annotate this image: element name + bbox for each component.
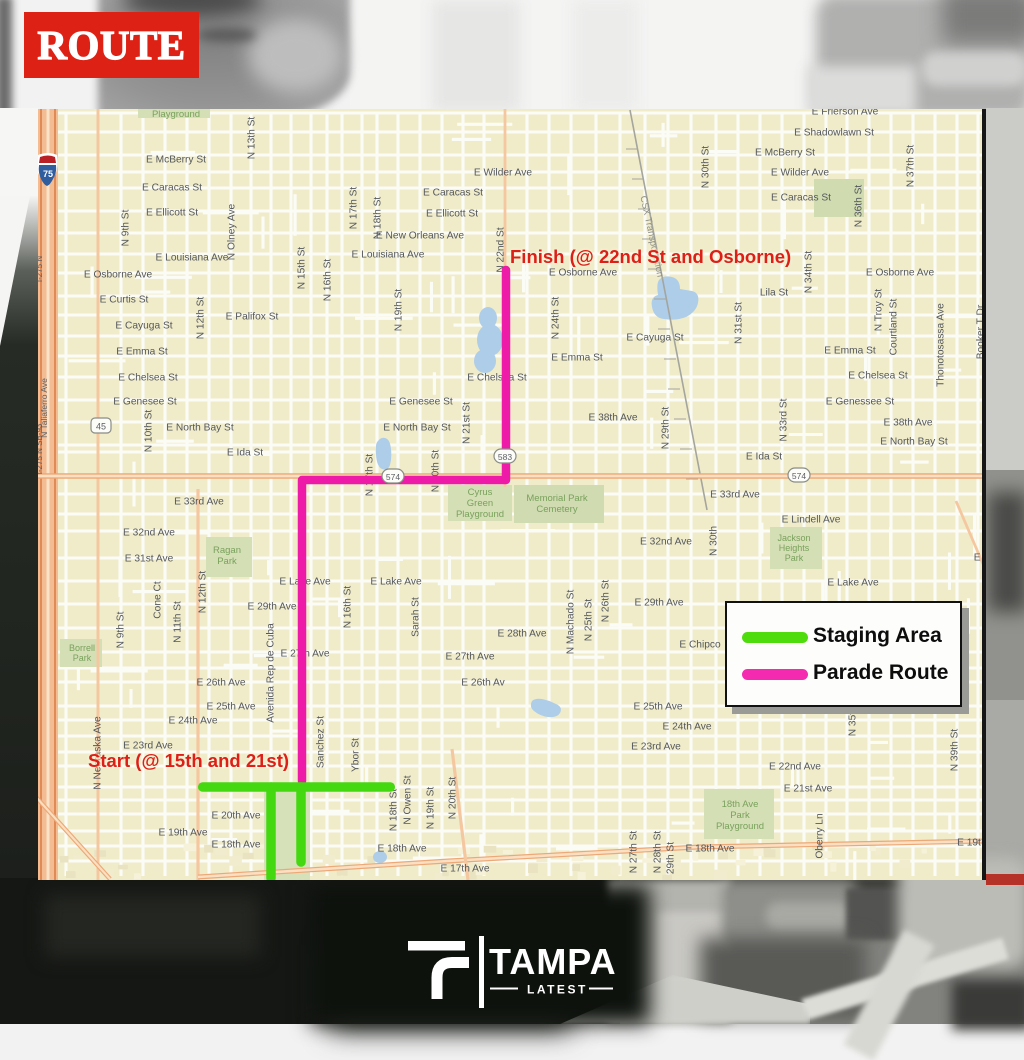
svg-text:E 26th Av: E 26th Av xyxy=(461,678,505,689)
svg-text:N 20th St: N 20th St xyxy=(448,777,459,820)
svg-text:Cone Ct: Cone Ct xyxy=(153,581,164,619)
svg-text:I-275 N: I-275 N xyxy=(38,256,44,282)
svg-text:Cyrus: Cyrus xyxy=(468,487,493,498)
svg-text:Park: Park xyxy=(785,553,804,563)
svg-text:E New Orleans Ave: E New Orleans Ave xyxy=(376,231,464,242)
svg-text:N 27th St: N 27th St xyxy=(629,831,640,874)
svg-text:E 33rd Ave: E 33rd Ave xyxy=(710,490,760,501)
svg-text:E Emma St: E Emma St xyxy=(116,347,168,358)
svg-text:E North Bay St: E North Bay St xyxy=(383,423,451,434)
svg-text:N 36th St: N 36th St xyxy=(854,185,865,228)
svg-text:E 25th Ave: E 25th Ave xyxy=(206,702,255,713)
svg-text:N 31st St: N 31st St xyxy=(734,302,745,344)
svg-text:45: 45 xyxy=(96,422,106,432)
svg-text:E Emma St: E Emma St xyxy=(551,353,603,364)
svg-text:E 29th Ave: E 29th Ave xyxy=(634,598,683,609)
svg-text:N 21st St: N 21st St xyxy=(462,402,473,444)
svg-text:E 38th Ave: E 38th Ave xyxy=(588,413,637,424)
svg-text:N 10th St: N 10th St xyxy=(144,410,155,453)
svg-text:E 24th Ave: E 24th Ave xyxy=(168,716,217,727)
svg-text:E 31st Ave: E 31st Ave xyxy=(125,554,174,565)
svg-text:Courtland St: Courtland St xyxy=(889,299,900,356)
svg-text:574: 574 xyxy=(386,472,400,482)
svg-text:E Genesee St: E Genesee St xyxy=(389,397,453,408)
svg-text:N 17th St: N 17th St xyxy=(365,454,376,497)
svg-text:Playground: Playground xyxy=(456,509,504,520)
svg-text:E Louisiana Ave: E Louisiana Ave xyxy=(352,250,425,261)
svg-text:Avenida Rep de Cuba: Avenida Rep de Cuba xyxy=(266,623,277,723)
svg-text:E Chelsea St: E Chelsea St xyxy=(467,373,527,384)
svg-text:E Lake Ave: E Lake Ave xyxy=(827,578,879,589)
svg-text:E Curtis St: E Curtis St xyxy=(100,295,149,306)
svg-text:N 26th St: N 26th St xyxy=(601,580,612,623)
svg-text:E Ida St: E Ida St xyxy=(746,452,782,463)
svg-text:E Ellicott St: E Ellicott St xyxy=(426,209,478,220)
svg-text:LATEST: LATEST xyxy=(527,983,588,997)
svg-text:E Osborne Ave: E Osborne Ave xyxy=(84,270,153,281)
svg-text:E Genesee St: E Genesee St xyxy=(113,397,177,408)
svg-text:E 18th Ave: E 18th Ave xyxy=(685,844,734,855)
svg-text:E 32nd Ave: E 32nd Ave xyxy=(640,537,692,548)
svg-text:E 23rd Ave: E 23rd Ave xyxy=(631,742,681,753)
svg-text:N 12th St: N 12th St xyxy=(198,571,209,614)
svg-text:18th Ave: 18th Ave xyxy=(722,799,759,810)
svg-text:Heights: Heights xyxy=(779,543,810,553)
svg-text:E Caracas St: E Caracas St xyxy=(142,183,202,194)
svg-text:E Palifox St: E Palifox St xyxy=(226,312,279,323)
svg-text:E Emma St: E Emma St xyxy=(824,346,876,357)
svg-text:N 33rd St: N 33rd St xyxy=(779,398,790,441)
svg-text:E 28th Ave: E 28th Ave xyxy=(497,629,546,640)
svg-text:E 18th Ave: E 18th Ave xyxy=(377,844,426,855)
svg-text:E 33rd Ave: E 33rd Ave xyxy=(174,497,224,508)
svg-text:E 24th Ave: E 24th Ave xyxy=(662,722,711,733)
svg-text:E Wilder Ave: E Wilder Ave xyxy=(771,168,829,179)
svg-text:Park: Park xyxy=(73,653,92,663)
svg-text:E 21st Ave: E 21st Ave xyxy=(784,784,833,795)
svg-text:N Owen St: N Owen St xyxy=(403,775,414,824)
svg-text:Jackson: Jackson xyxy=(777,533,810,543)
svg-text:E 18th Ave: E 18th Ave xyxy=(211,840,260,851)
svg-text:N 11th St: N 11th St xyxy=(173,601,184,643)
svg-text:N 16th St: N 16th St xyxy=(323,259,334,302)
svg-text:N 16th St: N 16th St xyxy=(343,586,354,629)
svg-text:Lila St: Lila St xyxy=(760,288,788,299)
svg-text:Thonotosassa Ave: Thonotosassa Ave xyxy=(936,303,947,387)
svg-text:Memorial Park: Memorial Park xyxy=(526,493,587,504)
svg-text:E 29th Ave: E 29th Ave xyxy=(247,602,296,613)
svg-text:N 25th St: N 25th St xyxy=(584,599,595,642)
svg-text:N 18th St: N 18th St xyxy=(373,197,384,240)
svg-text:29th St: 29th St xyxy=(666,842,677,874)
svg-text:N 19th St: N 19th St xyxy=(394,289,405,332)
svg-text:Ybor St: Ybor St xyxy=(351,738,362,772)
svg-text:N 18th St: N 18th St xyxy=(389,789,400,832)
svg-text:E 25th Ave: E 25th Ave xyxy=(633,702,682,713)
svg-text:N Olney Ave: N Olney Ave xyxy=(227,203,238,260)
svg-text:N 37th St: N 37th St xyxy=(906,145,917,188)
svg-text:E 19t: E 19t xyxy=(957,838,981,849)
svg-text:N 9th St: N 9th St xyxy=(121,209,132,246)
svg-text:N 15th St: N 15th St xyxy=(297,247,308,290)
svg-text:E Caracas St: E Caracas St xyxy=(771,193,831,204)
svg-text:Park: Park xyxy=(730,810,750,821)
svg-text:Playground: Playground xyxy=(716,821,764,832)
svg-text:E 32nd Ave: E 32nd Ave xyxy=(123,528,175,539)
svg-text:N 39th St: N 39th St xyxy=(950,729,961,772)
svg-text:E Chelsea St: E Chelsea St xyxy=(848,371,908,382)
svg-text:N 24th St: N 24th St xyxy=(551,297,562,340)
svg-text:N 22nd St: N 22nd St xyxy=(496,227,507,272)
svg-text:E Lindell Ave: E Lindell Ave xyxy=(782,515,841,526)
svg-text:E McBerry St: E McBerry St xyxy=(755,148,815,159)
svg-text:E Chelsea St: E Chelsea St xyxy=(118,373,178,384)
svg-text:Playground: Playground xyxy=(152,109,200,120)
svg-text:N 13th St: N 13th St xyxy=(247,117,258,160)
svg-text:E 19th Ave: E 19th Ave xyxy=(158,828,207,839)
svg-text:Park: Park xyxy=(217,556,237,567)
svg-text:E Wilder Ave: E Wilder Ave xyxy=(474,168,532,179)
svg-text:N 17th St: N 17th St xyxy=(349,187,360,230)
svg-text:N 29th St: N 29th St xyxy=(661,407,672,450)
svg-text:N 30th St: N 30th St xyxy=(701,146,712,189)
svg-text:E 20th Ave: E 20th Ave xyxy=(211,811,260,822)
svg-text:I-275 N SB-93: I-275 N SB-93 xyxy=(38,423,44,474)
svg-text:E McBerry St: E McBerry St xyxy=(146,155,206,166)
svg-text:E Osborne Ave: E Osborne Ave xyxy=(549,268,618,279)
svg-text:E Cayuga St: E Cayuga St xyxy=(626,333,683,344)
svg-text:583: 583 xyxy=(498,452,512,462)
svg-text:N 20th St: N 20th St xyxy=(431,450,442,493)
svg-text:Green: Green xyxy=(467,498,493,509)
svg-text:E Lake Ave: E Lake Ave xyxy=(370,577,422,588)
svg-text:E Ida St: E Ida St xyxy=(227,448,263,459)
svg-text:E 38th Ave: E 38th Ave xyxy=(883,418,932,429)
svg-text:TAMPA: TAMPA xyxy=(489,941,617,982)
svg-text:E North Bay St: E North Bay St xyxy=(880,437,948,448)
svg-text:574: 574 xyxy=(792,471,806,481)
svg-text:E North Bay St: E North Bay St xyxy=(166,423,234,434)
svg-text:N 28th St: N 28th St xyxy=(653,831,664,874)
svg-text:N 9th St: N 9th St xyxy=(116,611,127,648)
svg-text:N 19th St: N 19th St xyxy=(426,787,437,830)
svg-text:N Machado St: N Machado St xyxy=(566,590,577,655)
svg-text:E Louisiana Ave: E Louisiana Ave xyxy=(156,253,229,264)
svg-text:E 17th Ave: E 17th Ave xyxy=(440,864,489,875)
svg-text:E 27th Ave: E 27th Ave xyxy=(445,652,494,663)
svg-text:Oberry Ln: Oberry Ln xyxy=(815,813,826,858)
svg-text:E Caracas St: E Caracas St xyxy=(423,188,483,199)
svg-text:E Shadowlawn St: E Shadowlawn St xyxy=(794,128,874,139)
svg-text:Ragan: Ragan xyxy=(213,545,241,556)
svg-text:E 26th Ave: E 26th Ave xyxy=(196,678,245,689)
svg-text:E Ellicott St: E Ellicott St xyxy=(146,208,198,219)
svg-text:Sarah St: Sarah St xyxy=(411,597,422,637)
svg-text:75: 75 xyxy=(43,169,53,179)
svg-text:E Frierson Ave: E Frierson Ave xyxy=(812,109,879,118)
svg-text:E Cayuga St: E Cayuga St xyxy=(115,321,172,332)
svg-text:E 22nd Ave: E 22nd Ave xyxy=(769,762,821,773)
svg-text:Borrell: Borrell xyxy=(69,643,95,653)
svg-text:E Genessee St: E Genessee St xyxy=(826,397,895,408)
svg-text:E Osborne Ave: E Osborne Ave xyxy=(866,268,935,279)
svg-text:N 30th: N 30th xyxy=(709,526,720,556)
svg-text:Cemetery: Cemetery xyxy=(536,504,577,515)
svg-text:N 12th St: N 12th St xyxy=(196,297,207,340)
svg-text:N Troy St: N Troy St xyxy=(874,289,885,332)
svg-text:E Chipco: E Chipco xyxy=(679,640,721,651)
